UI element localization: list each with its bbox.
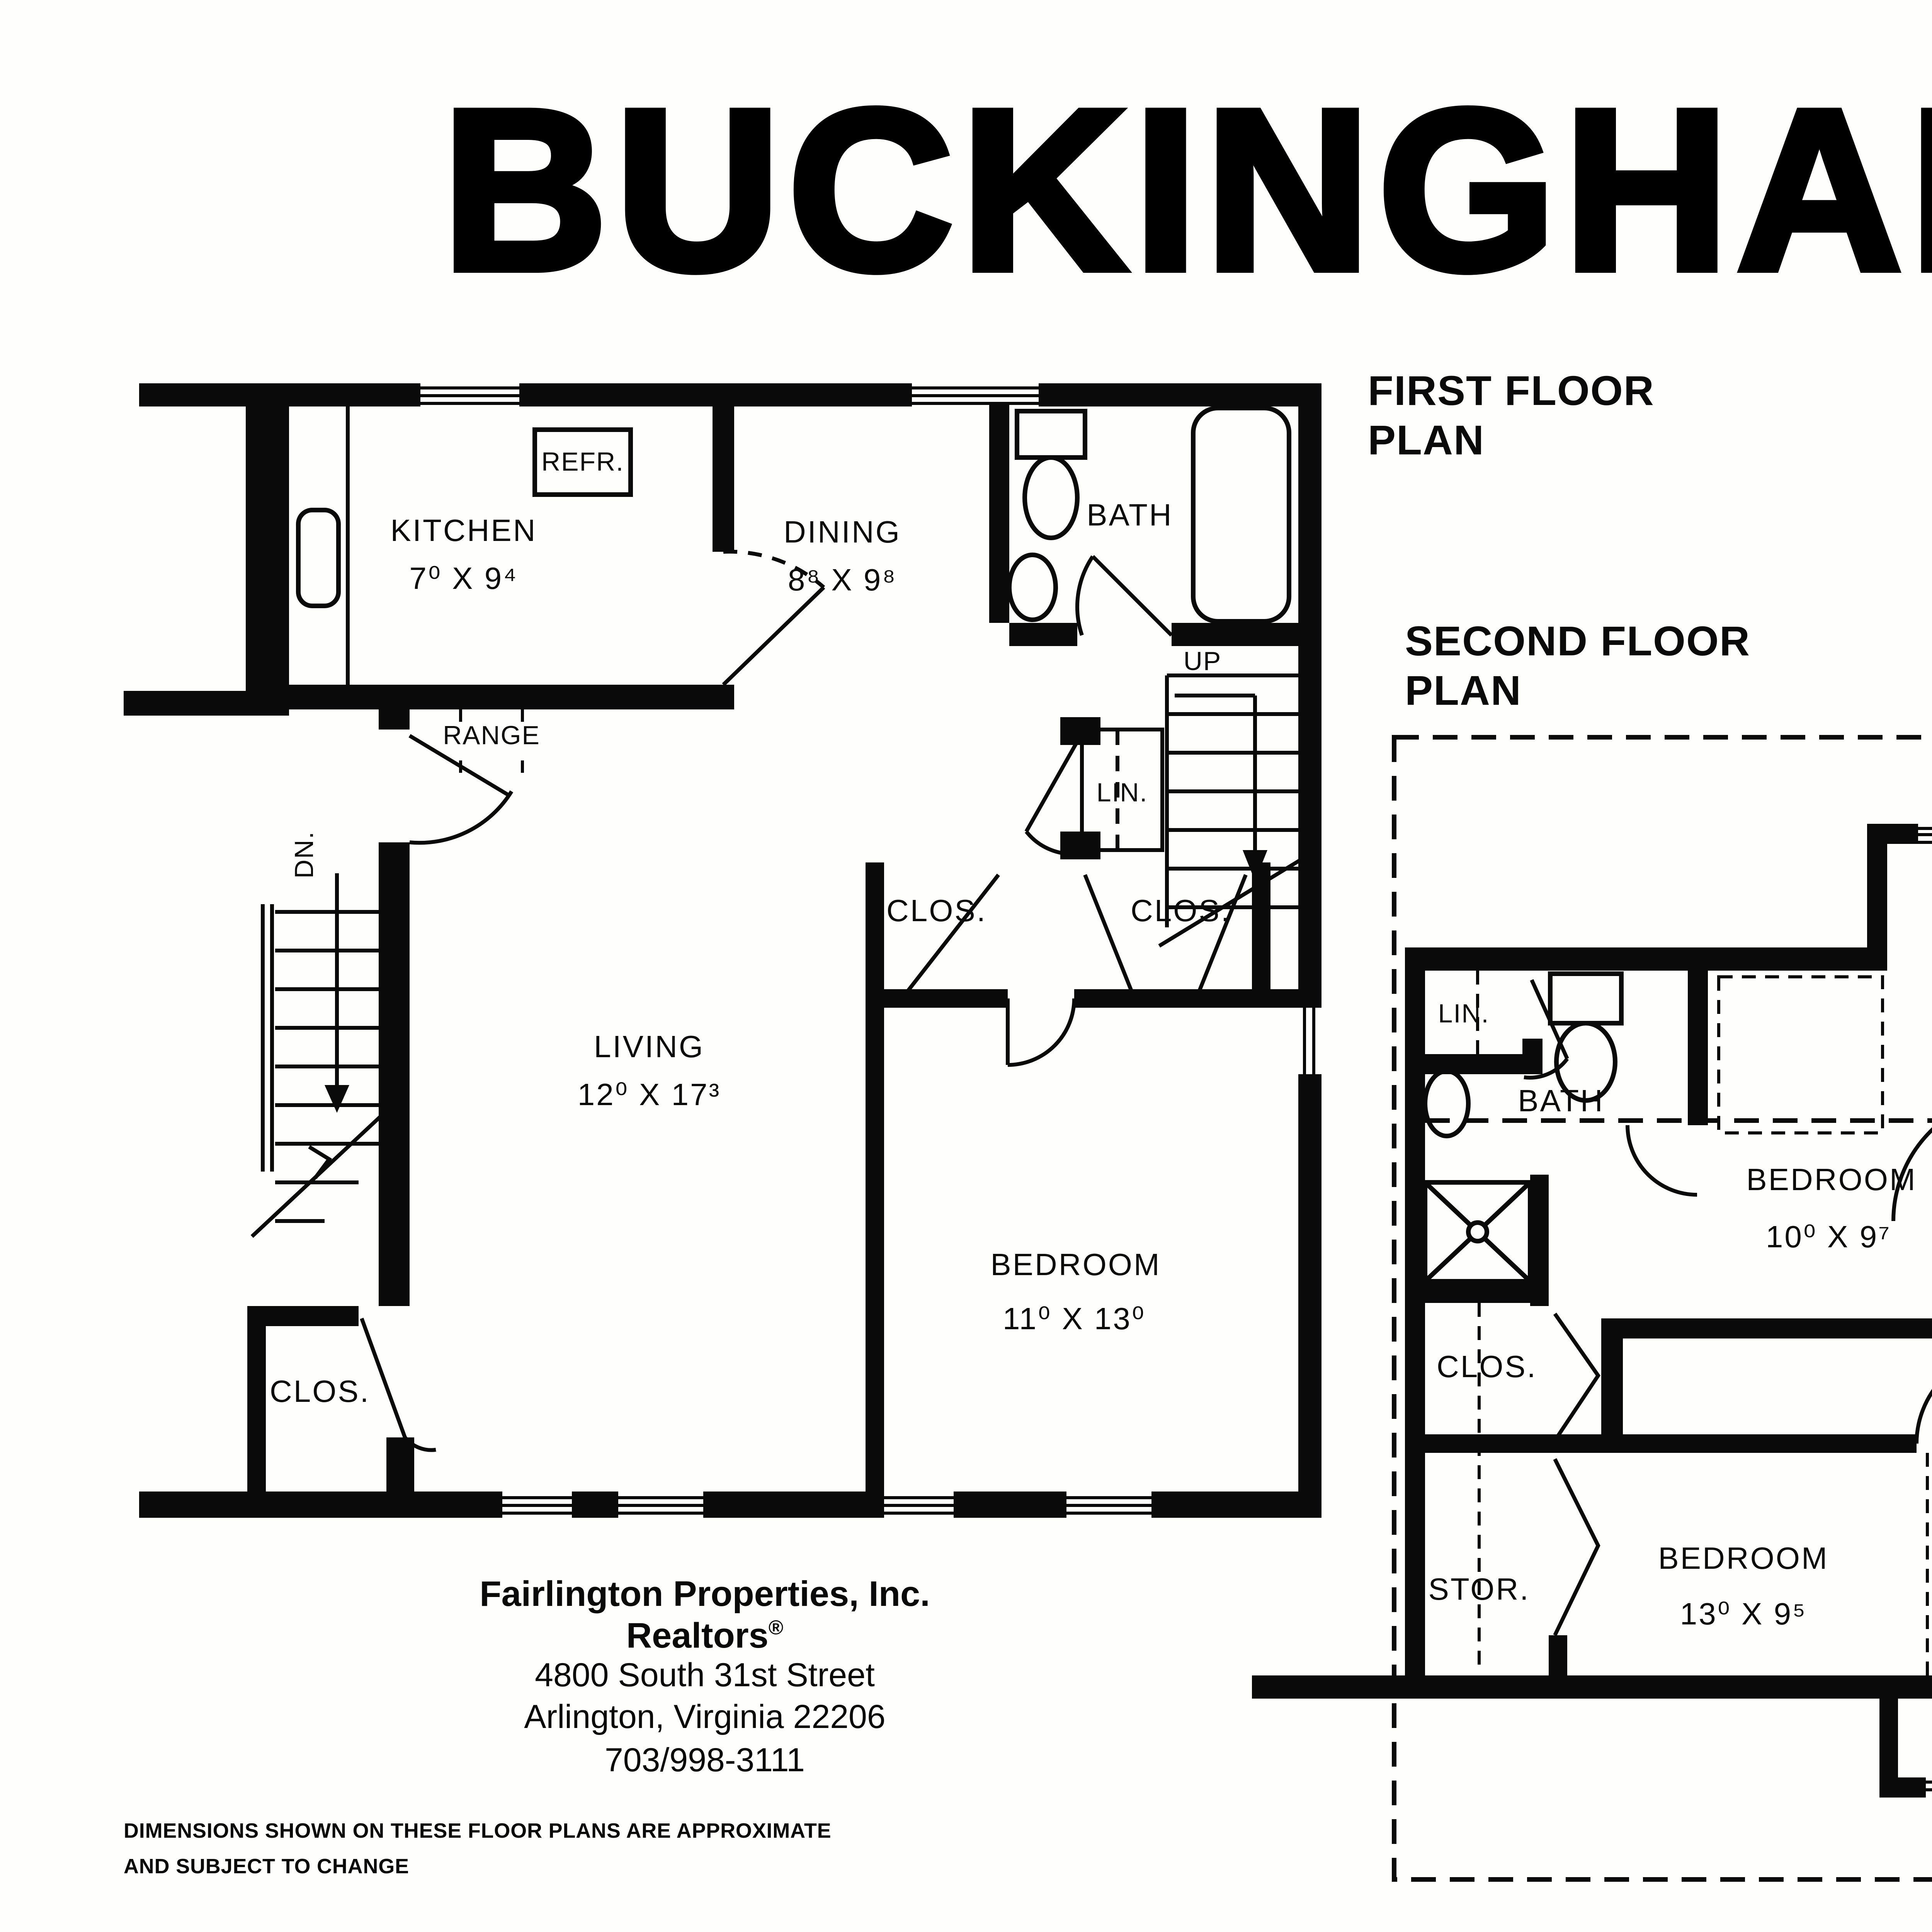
label-down-first: DN. bbox=[291, 831, 318, 878]
registered-mark: ® bbox=[769, 1615, 783, 1638]
room-dims-bedroom-front: 13⁰ X 9⁵ bbox=[1680, 1600, 1807, 1631]
floor-plan-sheet: BUCKINGHAM FIRST FLOOR PLAN SECOND FLOOR… bbox=[0, 0, 1932, 1932]
company-name: Fairlington Properties, Inc. bbox=[394, 1573, 1015, 1615]
bathtub-icon bbox=[1193, 408, 1289, 621]
bath-sink-icon-second bbox=[1425, 1071, 1468, 1136]
label-range: RANGE bbox=[443, 723, 540, 749]
label-linen-second: LIN. bbox=[1438, 1001, 1490, 1027]
room-dims-living: 12⁰ X 17³ bbox=[578, 1080, 721, 1111]
second-floor-windows bbox=[1918, 828, 1932, 1790]
room-label-bath-second: BATH bbox=[1518, 1087, 1604, 1117]
city-state-zip: Arlington, Virginia 22206 bbox=[394, 1698, 1015, 1740]
label-closet-hall-left: CLOS. bbox=[886, 896, 987, 927]
scanned-page: BUCKINGHAM FIRST FLOOR PLAN SECOND FLOOR… bbox=[0, 0, 1932, 1932]
toilet-icon bbox=[1017, 411, 1085, 538]
realtor-info-block: Fairlington Properties, Inc. Realtors® 4… bbox=[394, 1573, 1015, 1781]
label-closet-second: CLOS. bbox=[1437, 1352, 1537, 1383]
room-dims-bedroom-first: 11⁰ X 13⁰ bbox=[1003, 1304, 1146, 1335]
company-designation: Realtors® bbox=[394, 1615, 1015, 1656]
label-refrigerator: REFR. bbox=[541, 449, 624, 475]
toilet-icon-second bbox=[1550, 974, 1621, 1100]
door-arcs-second-floor bbox=[1524, 980, 1932, 1635]
room-dims-bedroom-rear: 10⁰ X 9⁷ bbox=[1766, 1223, 1891, 1253]
shower-icon bbox=[1425, 1182, 1530, 1281]
realtors-text: Realtors bbox=[626, 1615, 769, 1655]
kitchen-sink-icon bbox=[298, 510, 338, 606]
bath-sink-icon bbox=[1009, 555, 1056, 620]
label-closet-entry: CLOS. bbox=[270, 1377, 370, 1408]
room-label-dining: DINING bbox=[784, 518, 901, 549]
room-label-living: LIVING bbox=[594, 1032, 704, 1063]
room-label-bedroom-rear: BEDROOM bbox=[1746, 1165, 1917, 1196]
room-dims-dining: 8⁸ X 9⁸ bbox=[788, 566, 897, 597]
phone-number: 703/998-3111 bbox=[394, 1740, 1015, 1781]
room-label-bath-first: BATH bbox=[1087, 501, 1173, 532]
disclaimer-line1: DIMENSIONS SHOWN ON THESE FLOOR PLANS AR… bbox=[124, 1815, 832, 1850]
dn-arrowhead bbox=[325, 1085, 349, 1113]
street-address: 4800 South 31st Street bbox=[394, 1656, 1015, 1697]
label-closet-hall-right: CLOS. bbox=[1131, 896, 1231, 927]
disclaimer-line2: AND SUBJECT TO CHANGE bbox=[124, 1850, 832, 1886]
room-dims-kitchen: 7⁰ X 9⁴ bbox=[409, 564, 518, 595]
label-storage-small: STOR. bbox=[1428, 1575, 1530, 1606]
room-label-bedroom-first: BEDROOM bbox=[990, 1250, 1161, 1281]
second-floor-walls bbox=[1252, 824, 1932, 1798]
room-label-kitchen: KITCHEN bbox=[390, 516, 537, 547]
disclaimer-text: DIMENSIONS SHOWN ON THESE FLOOR PLANS AR… bbox=[124, 1815, 832, 1886]
label-up: UP bbox=[1184, 648, 1222, 675]
room-label-bedroom-front: BEDROOM bbox=[1658, 1544, 1828, 1575]
staircase-down-icon bbox=[252, 873, 391, 1236]
roof-outline-dashed bbox=[1394, 737, 1932, 1879]
label-linen-first: LIN. bbox=[1097, 780, 1148, 806]
